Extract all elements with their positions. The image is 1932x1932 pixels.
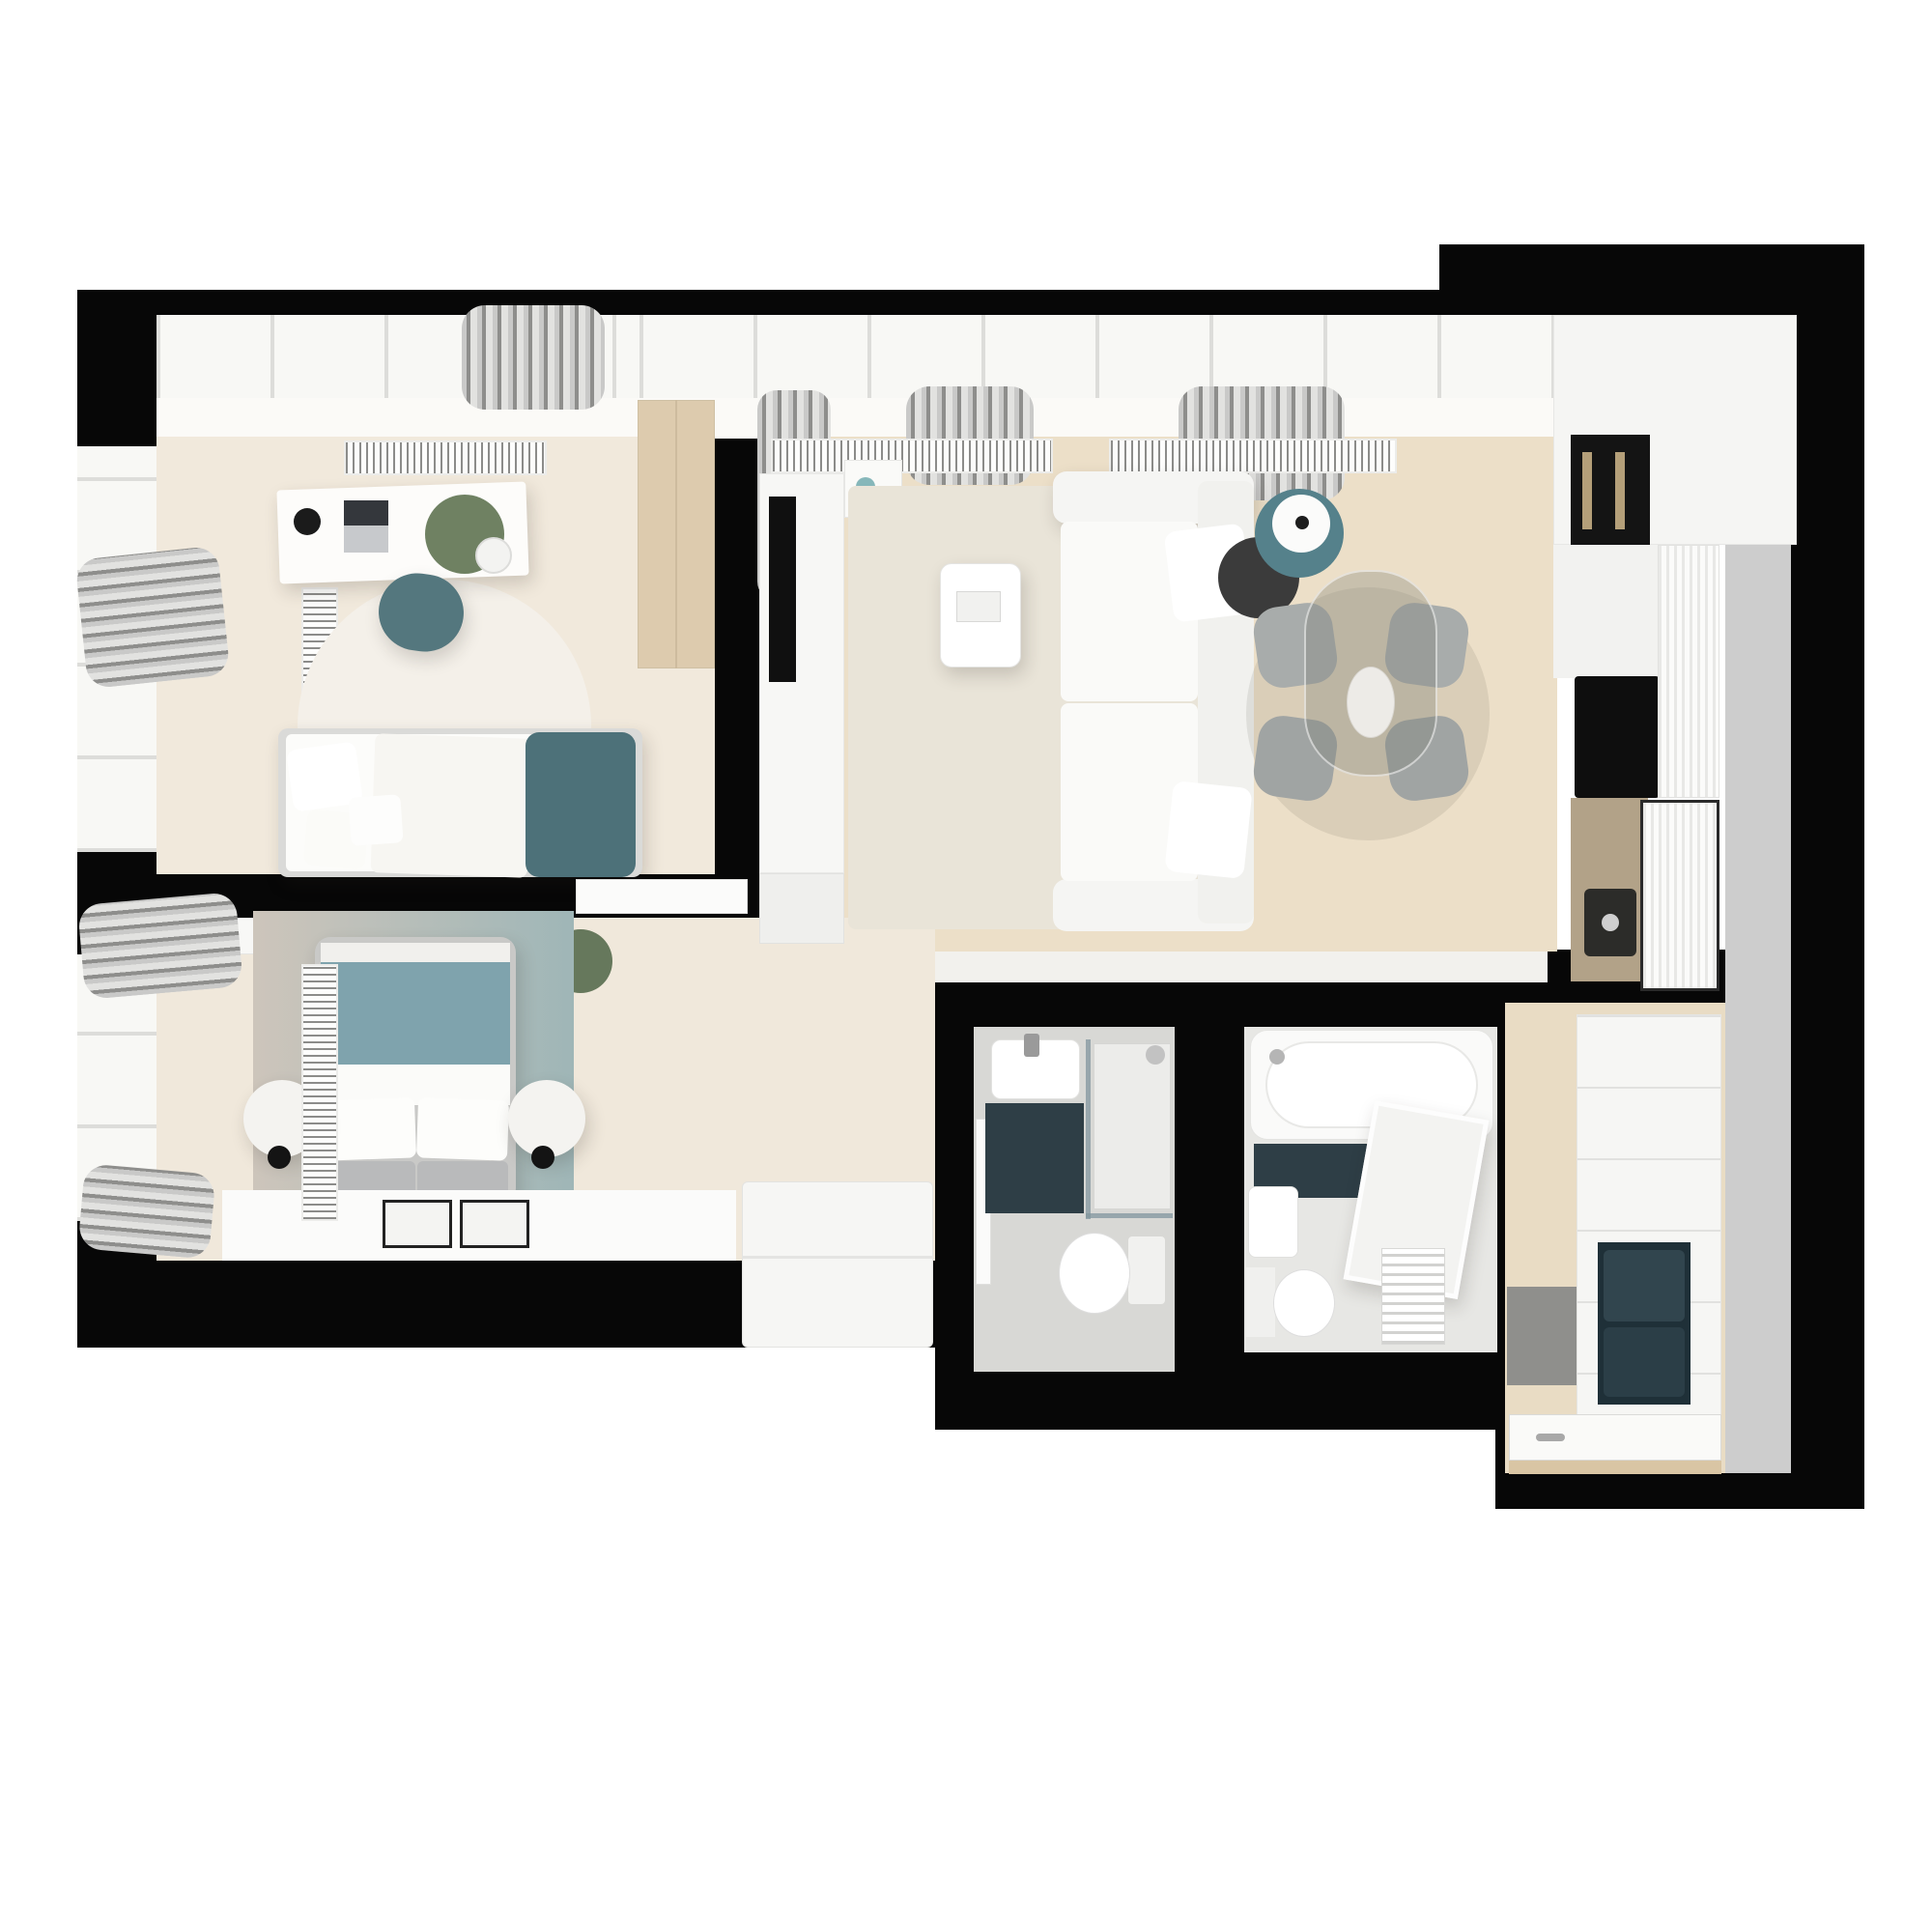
vanity-navy: [985, 1103, 1084, 1213]
ball-lamp-right: [531, 1146, 554, 1169]
curtain-office-left: [74, 546, 230, 690]
curtain-bedroom-bottom: [77, 1163, 215, 1260]
curtain-office-top: [462, 305, 605, 410]
washbasin-bathroom: [1248, 1186, 1298, 1258]
shower-head: [1146, 1045, 1165, 1065]
induction-cooktop: [1575, 676, 1660, 798]
desk-lamp: [294, 508, 321, 535]
floor-lamp-bulb: [1295, 516, 1309, 529]
framed-picture-left: [383, 1200, 452, 1248]
fluted-glass-partition: [1640, 800, 1719, 991]
plant-office-pot: [475, 537, 512, 574]
bedroom-storage-bench-seam: [742, 1256, 933, 1259]
entrance-door-handle: [1536, 1434, 1565, 1441]
shower-glass-vertical: [1086, 1039, 1091, 1219]
daybed-pillow-c: [348, 794, 403, 846]
coffee-table-magazine: [956, 591, 1001, 622]
sofa-pillow-bottom: [1164, 781, 1252, 879]
bed-blanket-blue: [321, 962, 510, 1065]
entry-doormat: [1507, 1287, 1578, 1385]
curtain-bedroom-top: [77, 892, 243, 1000]
radiator-living-left: [771, 439, 1053, 473]
dining-table-marble-center: [1347, 667, 1395, 738]
radiator-living-right: [1109, 439, 1397, 473]
window-top-living: [639, 315, 1555, 400]
toilet-tank-bathroom: [1246, 1267, 1275, 1337]
window-top-office: [156, 315, 715, 400]
bed-pillow-right: [416, 1097, 509, 1160]
toilet-bowl-shower-room: [1059, 1233, 1130, 1314]
living-sideboard: [759, 873, 844, 944]
bedroom-storage-bench: [742, 1181, 933, 1348]
radiator-office-top: [344, 440, 547, 475]
shower-glass-horizontal: [1086, 1213, 1173, 1218]
wall-left-top: [77, 290, 156, 456]
laptop-keyboard: [344, 526, 388, 553]
bed-top-fold: [321, 943, 510, 964]
framed-picture-right: [460, 1200, 529, 1248]
wood-wardrobe-seam: [675, 400, 677, 668]
ball-lamp-left: [268, 1146, 291, 1169]
window-sill-office: [156, 398, 715, 439]
oven-handle-right: [1615, 452, 1625, 529]
entrance-threshold: [1509, 1461, 1721, 1474]
washbasin-faucet: [1024, 1034, 1039, 1057]
wall-face-right-gray: [1725, 398, 1791, 1473]
toilet-tank-shower-room: [1128, 1236, 1165, 1304]
laptop-screen: [344, 500, 388, 526]
niche-cushion-bottom: [1604, 1327, 1685, 1397]
kitchen-sink-drain: [1602, 914, 1619, 931]
floor-plan-stage: [0, 0, 1932, 1932]
radiator-bedroom-left: [301, 964, 338, 1221]
oven-handle-left: [1582, 452, 1592, 529]
toilet-bowl-bathroom: [1273, 1269, 1335, 1337]
niche-cushion-top: [1604, 1250, 1685, 1321]
daybed-headboard-teal: [526, 732, 636, 877]
kitchen-counter-mid: [1553, 545, 1673, 678]
towel-radiator: [1381, 1248, 1445, 1345]
fluted-tall-cabinet: [1658, 545, 1719, 798]
bathtub-faucet: [1269, 1049, 1285, 1065]
shower-tray: [1094, 1043, 1171, 1209]
tv-screen: [769, 497, 796, 682]
bedroom-sliding-door: [576, 879, 748, 914]
